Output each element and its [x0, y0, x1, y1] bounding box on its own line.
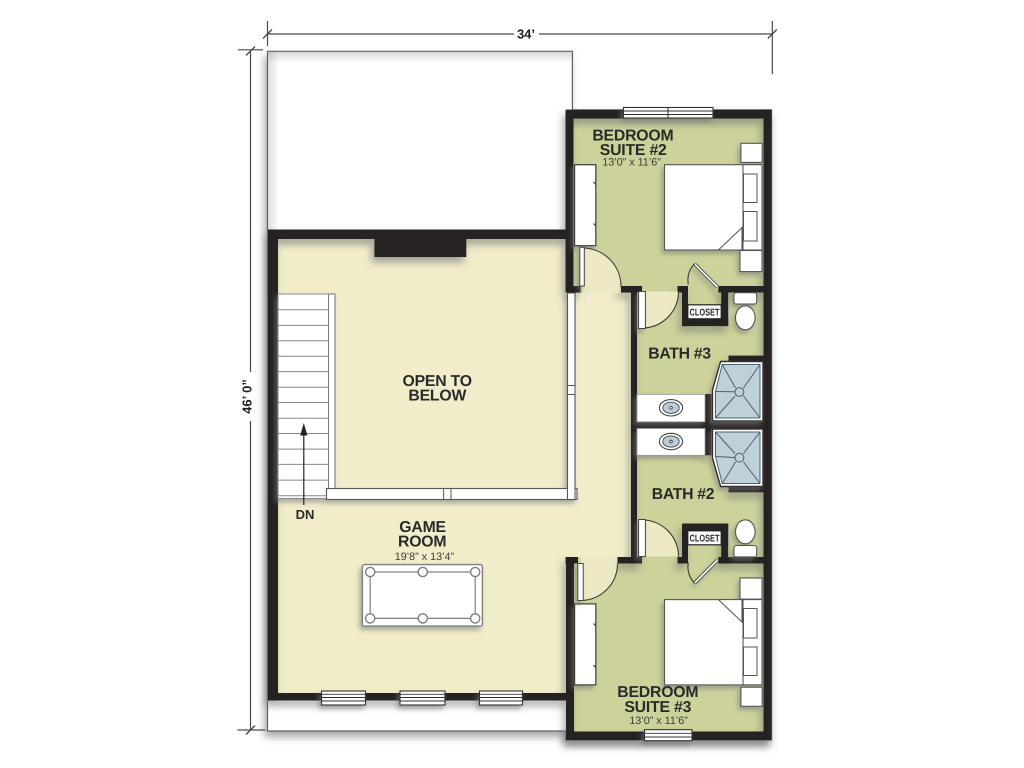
svg-text:13’0” x 11’6”: 13’0” x 11’6” [602, 156, 661, 168]
svg-text:BELOW: BELOW [408, 388, 466, 405]
svg-text:BATH #3: BATH #3 [648, 345, 711, 362]
svg-text:CLOSET: CLOSET [690, 533, 720, 544]
svg-text:ROOM: ROOM [398, 534, 446, 551]
svg-text:13’0” x 11’6”: 13’0” x 11’6” [629, 715, 688, 727]
svg-text:34’: 34’ [517, 27, 535, 42]
svg-text:CLOSET: CLOSET [690, 307, 720, 318]
svg-text:BATH #2: BATH #2 [652, 486, 715, 503]
svg-text:DN: DN [296, 507, 315, 522]
svg-text:19’8” x 13’4”: 19’8” x 13’4” [395, 551, 455, 563]
svg-text:SUITE #3: SUITE #3 [624, 699, 691, 716]
svg-text:46’ 0”: 46’ 0” [240, 379, 255, 414]
